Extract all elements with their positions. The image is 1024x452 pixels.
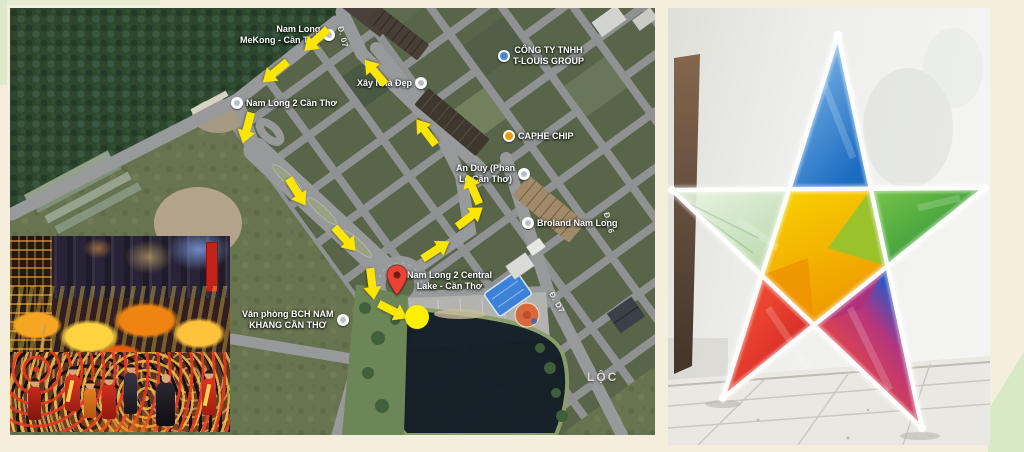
route-arrow xyxy=(361,267,383,301)
place-marker-icon xyxy=(415,77,427,89)
parade-figure xyxy=(102,384,116,419)
parade-crowd xyxy=(10,352,230,432)
place-marker-icon xyxy=(498,50,510,62)
map-label-nam-long-2-central-lake: Nam Long 2 CentralLake - Cần Thơ xyxy=(407,270,492,292)
map-label-t-louis-group: CÔNG TY TNHHT-LOUIS GROUP xyxy=(498,45,584,67)
parade-figure xyxy=(65,374,80,411)
place-marker-icon xyxy=(503,130,515,142)
route-arrow xyxy=(418,234,455,267)
route-arrow xyxy=(234,110,260,146)
corner-accent-top-edge xyxy=(0,0,160,5)
route-arrow xyxy=(281,174,313,211)
place-marker-icon xyxy=(337,314,349,326)
map-label-xay-nha-dep: Xây Nhà Đẹp xyxy=(357,77,427,89)
road-label: Đ. 07 xyxy=(336,25,350,48)
road-label: Đ. D7 xyxy=(547,290,566,314)
place-marker-icon xyxy=(518,168,530,180)
route-arrow xyxy=(409,114,443,150)
star-lantern-art xyxy=(668,8,990,445)
destination-dot xyxy=(405,305,429,329)
map-label-nam-long-2-can-tho: Nam Long 2 Cần Thơ xyxy=(231,97,337,109)
parade-figure xyxy=(202,378,216,415)
map-label-caphe-chip: CAPHE CHIP xyxy=(503,130,574,142)
place-marker-icon xyxy=(522,217,534,229)
route-arrow xyxy=(257,55,293,89)
star-lantern-photo xyxy=(668,8,990,445)
parade-figure xyxy=(156,382,175,426)
place-marker-icon xyxy=(231,97,243,109)
route-arrow xyxy=(328,221,363,257)
festival-crowd-photo xyxy=(10,236,230,432)
satellite-route-map: Đ. 07Đ. D7Đ. 16LỘCNam LongMeKong - Cần T… xyxy=(10,8,655,435)
map-label-broland-nam-long: Broland Nam Long xyxy=(522,217,618,229)
road-label: LỘC xyxy=(587,370,618,384)
map-label-van-phong-bch: Văn phòng BCH NAMKHANG CẦN THƠ xyxy=(242,309,349,331)
corner-accent-bottom-right xyxy=(988,352,1024,452)
parade-figure xyxy=(28,386,41,420)
banner-collage: Đ. 07Đ. D7Đ. 16LỘCNam LongMeKong - Cần T… xyxy=(0,0,1024,452)
red-banner xyxy=(206,242,218,292)
corner-accent-top-left xyxy=(0,0,7,85)
parade-figure xyxy=(124,372,137,414)
parade-figure xyxy=(84,388,96,418)
map-pin-icon xyxy=(385,264,409,296)
